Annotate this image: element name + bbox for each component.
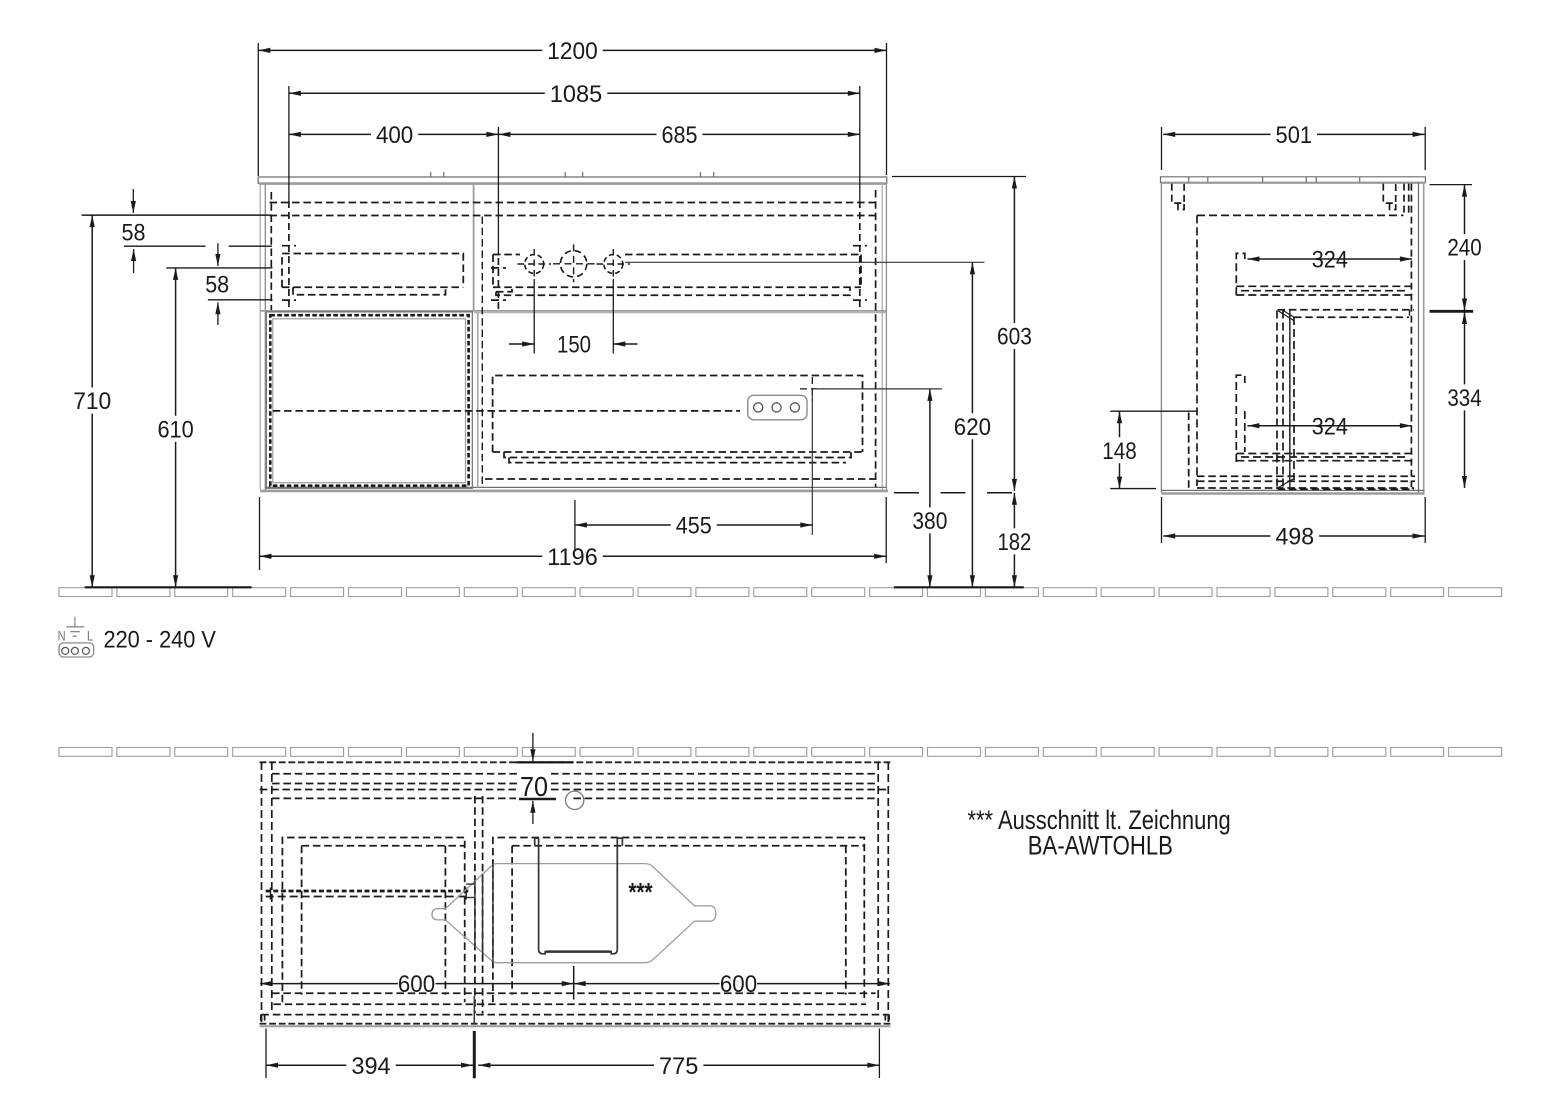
svg-text:***: *** — [629, 877, 654, 907]
svg-text:58: 58 — [122, 219, 146, 246]
svg-text:1085: 1085 — [550, 81, 602, 108]
svg-text:455: 455 — [676, 513, 712, 540]
svg-text:N: N — [58, 628, 66, 643]
svg-text:501: 501 — [1276, 122, 1313, 149]
svg-text:1196: 1196 — [547, 544, 598, 571]
svg-text:400: 400 — [376, 122, 413, 149]
svg-text:394: 394 — [351, 1053, 390, 1080]
svg-text:610: 610 — [157, 416, 193, 443]
svg-text:380: 380 — [912, 508, 947, 535]
svg-text:775: 775 — [659, 1053, 698, 1080]
svg-text:603: 603 — [997, 324, 1032, 351]
svg-text:58: 58 — [205, 271, 229, 298]
svg-text:498: 498 — [1276, 524, 1315, 551]
svg-text:70: 70 — [520, 771, 548, 802]
svg-text:600: 600 — [720, 971, 757, 998]
svg-text:148: 148 — [1102, 438, 1136, 465]
svg-text:324: 324 — [1312, 247, 1348, 274]
svg-text:334: 334 — [1447, 385, 1481, 412]
svg-text:600: 600 — [398, 971, 435, 998]
svg-text:240: 240 — [1447, 235, 1481, 262]
svg-text:182: 182 — [998, 529, 1032, 556]
svg-text:L: L — [87, 628, 94, 643]
svg-text:150: 150 — [557, 332, 591, 359]
svg-text:324: 324 — [1312, 413, 1348, 440]
svg-text:220 - 240 V: 220 - 240 V — [104, 626, 216, 653]
svg-text:620: 620 — [954, 414, 991, 441]
svg-text:1200: 1200 — [547, 38, 598, 65]
svg-text:710: 710 — [73, 388, 111, 415]
svg-text:BA-AWTOHLB: BA-AWTOHLB — [1028, 831, 1173, 861]
svg-text:685: 685 — [662, 122, 698, 149]
